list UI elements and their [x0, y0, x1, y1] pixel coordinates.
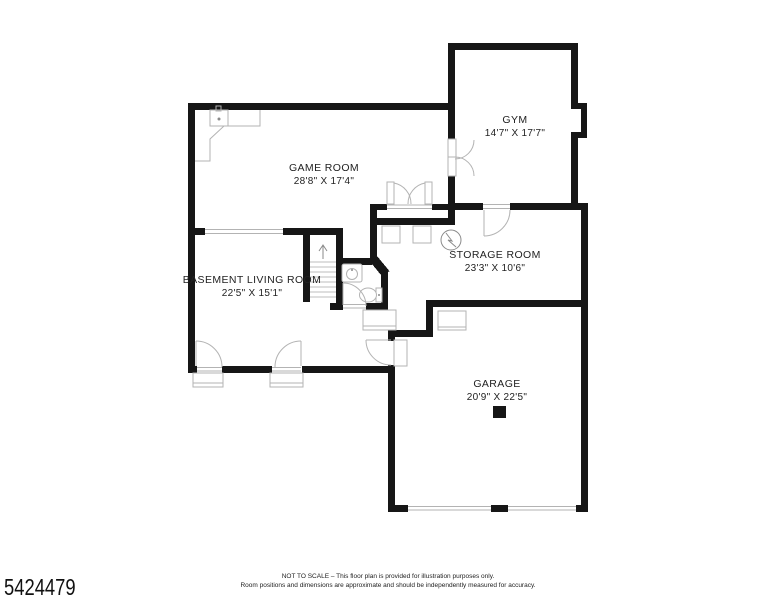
room-name: GARAGE	[467, 378, 527, 391]
window-well	[193, 373, 303, 387]
floor-plan-page: GYM 14'7" X 17'7" GAME ROOM 28'8" X 17'4…	[0, 0, 776, 600]
floor-plan-drawing	[0, 0, 776, 600]
disclaimer: NOT TO SCALE – This floor plan is provid…	[240, 572, 535, 590]
room-dimensions: 23'3" X 10'6"	[449, 262, 541, 275]
room-name: STORAGE ROOM	[449, 249, 541, 262]
garage-entry-door	[366, 340, 407, 366]
room-label-basement-living-room: BASEMENT LIVING ROOM 22'5" X 15'1"	[183, 274, 322, 300]
stair-up-arrow-icon	[319, 245, 327, 259]
room-name: GYM	[485, 114, 545, 127]
garage-door-right	[508, 507, 576, 511]
bathroom-diagonal-wall	[372, 257, 386, 274]
room-dimensions: 20'9" X 22'5"	[467, 391, 527, 404]
basement-doors	[193, 341, 303, 387]
storage-fixtures	[382, 226, 461, 250]
room-label-gym: GYM 14'7" X 17'7"	[485, 114, 545, 140]
disclaimer-line-1: NOT TO SCALE – This floor plan is provid…	[240, 572, 535, 581]
room-dimensions: 22'5" X 15'1"	[183, 287, 322, 300]
bathroom	[342, 264, 382, 308]
room-label-storage-room: STORAGE ROOM 23'3" X 10'6"	[449, 249, 541, 275]
garage-features	[366, 311, 576, 510]
room-dimensions: 14'7" X 17'7"	[485, 127, 545, 140]
bathroom-sink-icon	[342, 264, 362, 282]
closet-double-door	[387, 182, 432, 209]
water-heater-fixture	[438, 311, 466, 330]
hallway-fixture	[363, 310, 396, 330]
cased-opening-game-to-basement	[205, 230, 283, 234]
room-dimensions: 28'8" X 17'4"	[289, 175, 359, 188]
support-post	[493, 406, 506, 418]
storage-door	[483, 205, 510, 237]
room-label-game-room: GAME ROOM 28'8" X 17'4"	[289, 162, 359, 188]
gym-double-door	[448, 139, 474, 176]
room-label-garage: GARAGE 20'9" X 22'5"	[467, 378, 527, 404]
disclaimer-line-2: Room positions and dimensions are approx…	[240, 581, 535, 590]
sump-pump-icon	[441, 230, 461, 250]
listing-number: 5424479	[4, 574, 76, 600]
room-name: GAME ROOM	[289, 162, 359, 175]
garage-door-left	[408, 507, 491, 511]
room-name: BASEMENT LIVING ROOM	[183, 274, 322, 287]
wet-bar-counter	[195, 106, 260, 161]
